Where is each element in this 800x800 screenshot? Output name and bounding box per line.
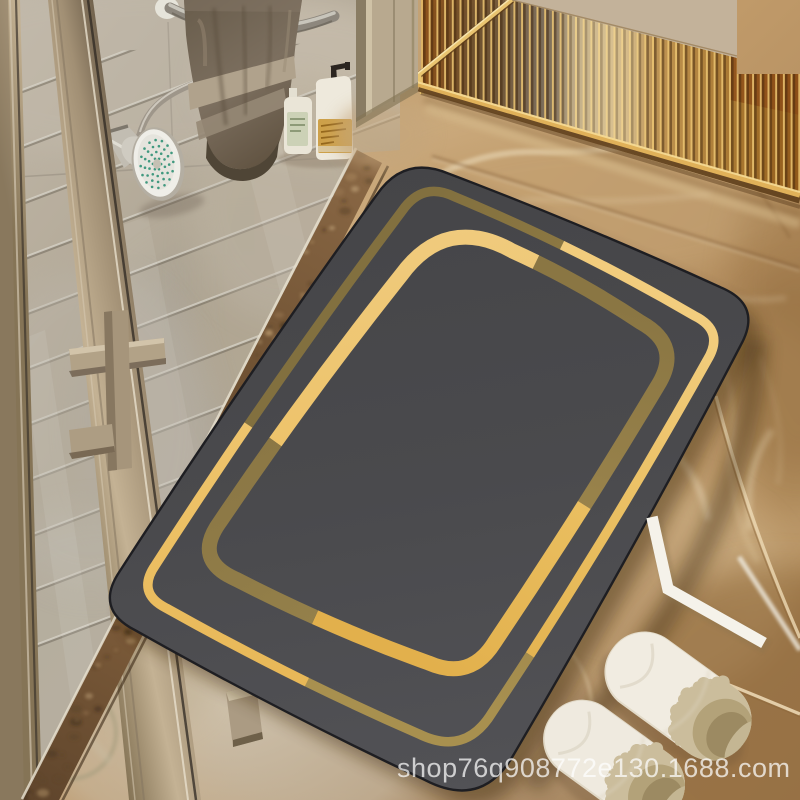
svg-text:shop76q908772e130.1688.com: shop76q908772e130.1688.com — [397, 753, 790, 783]
